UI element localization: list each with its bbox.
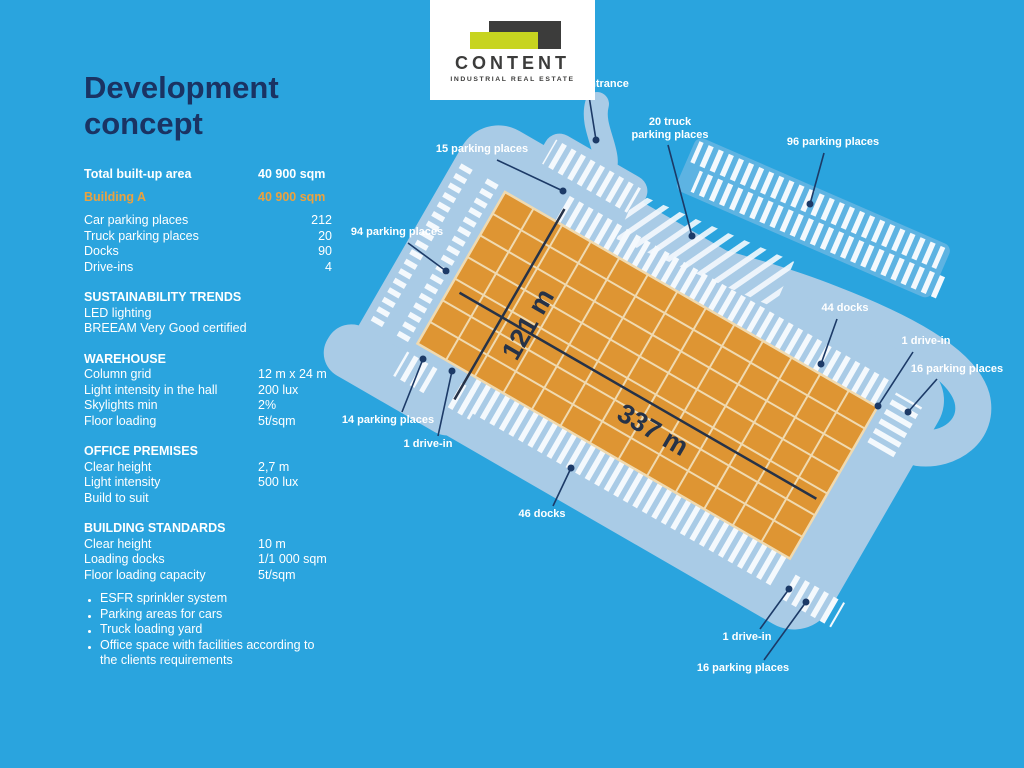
callout-20-truck-line1: 20 truck xyxy=(649,116,692,128)
spec-row-building-a: Building A 40 900 sqm xyxy=(84,190,334,206)
section-sustainability: SUSTAINABILITY TRENDS LED lighting BREEA… xyxy=(84,290,334,337)
spec-row: Clear height2,7 m xyxy=(84,460,334,476)
bullet-dot-icon xyxy=(84,591,100,607)
list-item: Office space with facilities according t… xyxy=(84,638,334,669)
spec-row: Loading docks1/1 000 sqm xyxy=(84,552,334,568)
specs-panel: Developmentconcept Total built-up area 4… xyxy=(84,70,334,669)
callout-20-truck-line2: parking places xyxy=(631,129,708,141)
callout-drive-in-bottom: 1 drive-in xyxy=(723,631,772,643)
logo-mark-icon xyxy=(430,0,595,100)
spec-row: Skylights min2% xyxy=(84,398,334,414)
logo-lime-bar xyxy=(470,32,538,49)
spec-row: LED lighting xyxy=(84,306,334,322)
spec-row: Floor loading5t/sqm xyxy=(84,414,334,430)
logo-name: CONTENT xyxy=(430,53,595,74)
callout-16-parking-right: 16 parking places xyxy=(911,363,1003,375)
feature-bullets: ESFR sprinkler system Parking areas for … xyxy=(84,591,334,669)
spec-row-docks: Docks90 xyxy=(84,244,334,260)
spec-row-car-parking: Car parking places212 xyxy=(84,213,334,229)
spec-row: Floor loading capacity5t/sqm xyxy=(84,568,334,584)
callout-14-parking: 14 parking places xyxy=(342,414,434,426)
spec-row-total-area: Total built-up area 40 900 sqm xyxy=(84,167,334,183)
callout-96-parking: 96 parking places xyxy=(787,136,879,148)
company-logo: CONTENT INDUSTRIAL REAL ESTATE xyxy=(430,0,595,100)
logo-tagline: INDUSTRIAL REAL ESTATE xyxy=(430,76,595,83)
spec-counts: Car parking places212 Truck parking plac… xyxy=(84,213,334,275)
bullet-dot-icon xyxy=(84,638,100,669)
spec-row-drive-ins: Drive-ins4 xyxy=(84,260,334,276)
list-item: ESFR sprinkler system xyxy=(84,591,334,607)
logo-dark-leg xyxy=(538,21,561,49)
list-item: Parking areas for cars xyxy=(84,607,334,623)
bullet-dot-icon xyxy=(84,607,100,623)
callout-94-parking: 94 parking places xyxy=(351,226,443,238)
callout-16-parking-bottom: 16 parking places xyxy=(697,662,789,674)
slide: { "panel": { "title_line1": "Development… xyxy=(0,0,1024,768)
spec-row: Column grid12 m x 24 m xyxy=(84,367,334,383)
page-title: Developmentconcept xyxy=(84,70,334,141)
spec-row-truck-parking: Truck parking places20 xyxy=(84,229,334,245)
spec-row: Build to suit xyxy=(84,491,334,507)
section-building-standards: BUILDING STANDARDS Clear height10 m Load… xyxy=(84,521,334,583)
spec-row: BREEAM Very Good certified xyxy=(84,321,334,337)
callout-15-parking: 15 parking places xyxy=(436,143,528,155)
list-item: Truck loading yard xyxy=(84,622,334,638)
spec-row: Light intensity500 lux xyxy=(84,475,334,491)
building-group: 121 m 337 m xyxy=(314,83,978,653)
callout-46-docks: 46 docks xyxy=(518,508,565,520)
section-warehouse: WAREHOUSE Column grid12 m x 24 m Light i… xyxy=(84,352,334,430)
callout-drive-in-right: 1 drive-in xyxy=(902,335,951,347)
spec-row: Clear height10 m xyxy=(84,537,334,553)
spec-row: Light intensity in the hall200 lux xyxy=(84,383,334,399)
bullet-dot-icon xyxy=(84,622,100,638)
callout-drive-in-left: 1 drive-in xyxy=(404,438,453,450)
section-office: OFFICE PREMISES Clear height2,7 m Light … xyxy=(84,444,334,506)
callout-44-docks: 44 docks xyxy=(821,302,868,314)
